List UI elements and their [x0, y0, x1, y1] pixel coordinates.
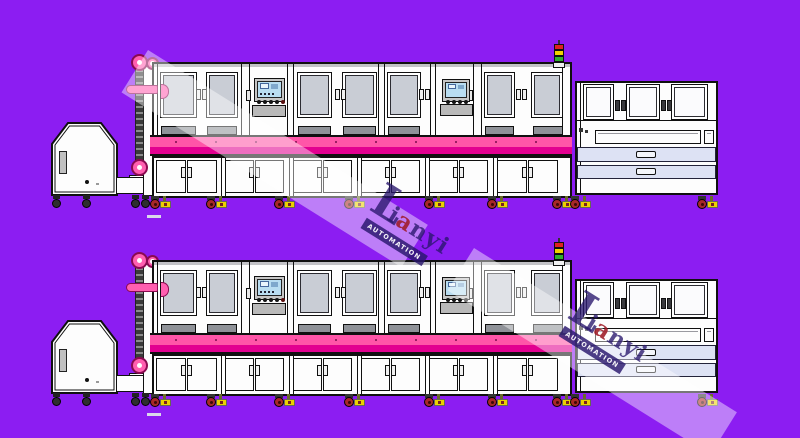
- frame-line: [241, 262, 242, 333]
- door-handle-pair: [516, 89, 528, 100]
- vent-slot: [485, 126, 514, 135]
- door-handle-pair: [249, 365, 261, 376]
- frame-line: [481, 64, 482, 135]
- frame-line: [293, 262, 294, 333]
- frame-line: [435, 64, 436, 135]
- door-handle-pair: [661, 100, 673, 111]
- door-handle-pair: [181, 365, 193, 376]
- screen-icon: [272, 93, 274, 95]
- caster-cluster: [150, 394, 174, 409]
- vent-slot: [207, 324, 237, 333]
- cad-drawing-canvas: L ianyi AUTOMATION L ianyi AUTOMATION: [0, 0, 800, 438]
- door-handle-pair: [522, 365, 534, 376]
- latch-mark: [585, 130, 588, 133]
- vent-slot: [388, 324, 420, 333]
- station-window: [626, 84, 660, 120]
- station-window: [583, 84, 614, 120]
- band-bolt: [455, 141, 457, 143]
- feeder-caster: [131, 393, 140, 406]
- frame-line: [473, 64, 474, 135]
- panel-button: [281, 298, 285, 302]
- door-handle-pair: [453, 365, 465, 376]
- window-glass: [531, 72, 563, 118]
- frame-line: [575, 120, 718, 121]
- recessed-panel: [595, 130, 701, 144]
- band-bolt: [175, 141, 177, 143]
- panel-button: [281, 100, 285, 104]
- screen-icon: [260, 93, 262, 95]
- feeder-knob: [85, 180, 89, 184]
- band-bolt: [455, 339, 457, 341]
- station-window: [671, 84, 708, 120]
- band-bolt: [495, 339, 497, 341]
- door-handle-pair: [661, 298, 673, 309]
- cabinet-top-edge: [154, 64, 570, 67]
- door-handle-pair: [419, 89, 431, 100]
- vent-slot: [298, 324, 331, 333]
- feeder-vent-slot: [59, 151, 67, 174]
- door-handle-pair: [335, 287, 347, 298]
- door-handle-pair: [181, 167, 193, 178]
- window-glass: [342, 270, 377, 316]
- vent-slot: [343, 126, 376, 135]
- band-bolt: [415, 339, 417, 341]
- frame-line: [384, 262, 385, 333]
- screen-window: [271, 282, 278, 287]
- latch-mark: [579, 128, 583, 132]
- recessed-panel-small: [704, 328, 714, 342]
- feeder-vent-slot: [59, 349, 67, 372]
- screen-icon: [268, 291, 270, 293]
- panel-button: [269, 100, 273, 104]
- door-handle-pair: [615, 100, 627, 111]
- panel-button: [263, 298, 267, 302]
- screen-icon: [264, 93, 266, 95]
- frame-line: [384, 64, 385, 135]
- door-handle-pair: [453, 167, 465, 178]
- band-bolt: [495, 141, 497, 143]
- window-glass: [342, 72, 377, 118]
- screen-icon: [268, 93, 270, 95]
- window-glass: [206, 270, 238, 316]
- band-bolt: [255, 339, 257, 341]
- band-bolt: [535, 141, 537, 143]
- panel-button: [257, 100, 261, 104]
- frame-line: [287, 64, 288, 135]
- door-handle-pair: [335, 89, 347, 100]
- feeder-caster: [52, 393, 61, 406]
- band-bolt: [215, 339, 217, 341]
- caster-cluster: [344, 394, 368, 409]
- station-window: [671, 282, 708, 318]
- window-glass: [297, 270, 332, 316]
- signal-tower-base: [553, 62, 565, 68]
- band-bolt: [335, 339, 337, 341]
- panel-button: [263, 100, 267, 104]
- panel-button: [275, 100, 279, 104]
- caster-cluster: [570, 394, 594, 409]
- caster-cluster: [424, 394, 448, 409]
- station-window: [626, 282, 660, 318]
- elevator-chain: [135, 258, 144, 370]
- signal-tower-base: [553, 260, 565, 266]
- screen-window: [448, 84, 456, 89]
- screen-window: [260, 281, 269, 287]
- keyboard-tray: [440, 104, 473, 116]
- feeder-speck: [96, 381, 99, 383]
- keyboard-tray: [252, 105, 286, 117]
- recessed-panel-small: [704, 130, 714, 144]
- band-bolt: [375, 339, 377, 341]
- frame-line: [157, 262, 158, 333]
- door-handle-pair: [385, 365, 397, 376]
- vent-slot: [161, 324, 196, 333]
- door-handle: [246, 90, 251, 101]
- panel-button: [257, 298, 261, 302]
- door-handle: [246, 288, 251, 299]
- window-glass: [387, 72, 421, 118]
- band-bolt: [375, 141, 377, 143]
- elevator-pulley-bottom: [131, 159, 148, 176]
- cabinet-top-edge: [154, 262, 570, 265]
- window-glass: [297, 72, 332, 118]
- conveyor-band: [150, 333, 572, 354]
- feeder-caster: [82, 393, 91, 406]
- screen-icon: [272, 291, 274, 293]
- drawer-handle: [636, 168, 656, 175]
- window-glass: [484, 72, 515, 118]
- frame-line: [287, 262, 288, 333]
- door-handle-pair: [196, 287, 208, 298]
- frame-line: [378, 64, 379, 135]
- dimension-dash: [147, 413, 161, 416]
- feeder-speck: [96, 183, 99, 185]
- panel-button: [275, 298, 279, 302]
- elevator-feed-arm: [126, 283, 158, 292]
- caster-cluster: [206, 394, 230, 409]
- band-bolt: [175, 339, 177, 341]
- vent-slot: [298, 126, 331, 135]
- feeder-caster: [141, 393, 150, 406]
- door-handle-pair: [317, 365, 329, 376]
- band-bolt: [295, 339, 297, 341]
- band-bolt: [335, 141, 337, 143]
- frame-line: [293, 64, 294, 135]
- panel-button: [269, 298, 273, 302]
- vent-slot: [343, 324, 376, 333]
- vent-slot: [533, 126, 563, 135]
- vent-slot: [388, 126, 420, 135]
- door-handle-pair: [615, 298, 627, 309]
- band-bolt: [415, 141, 417, 143]
- drawer-handle: [636, 151, 656, 158]
- keyboard-tray: [252, 303, 286, 315]
- screen-window: [458, 85, 464, 89]
- caster-cluster: [487, 394, 511, 409]
- frame-line: [378, 262, 379, 333]
- screen-icon: [260, 291, 262, 293]
- feeder-knob: [85, 378, 89, 382]
- screen-window: [260, 83, 269, 89]
- screen-icon: [264, 291, 266, 293]
- screen-window: [271, 84, 278, 89]
- elevator-pulley-bottom: [131, 357, 148, 374]
- door-handle-pair: [522, 167, 534, 178]
- caster-cluster: [274, 394, 298, 409]
